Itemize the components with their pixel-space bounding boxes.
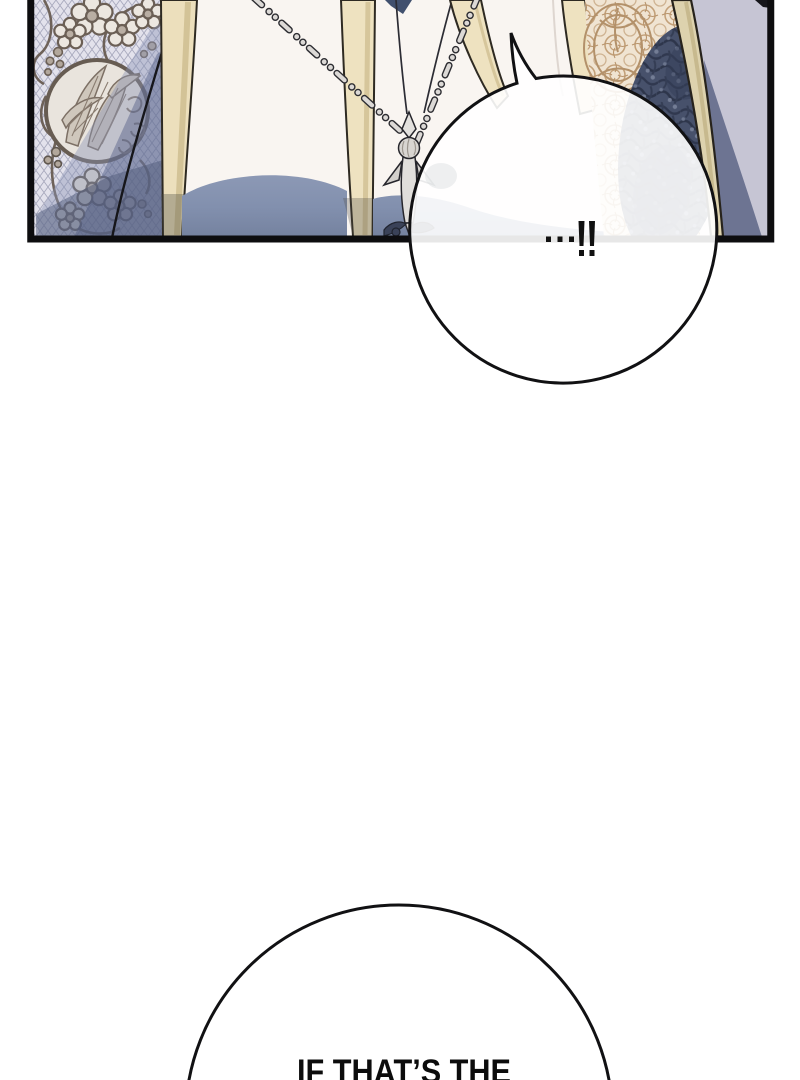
svg-text:IF THAT’S THE: IF THAT’S THE [297,1053,511,1080]
